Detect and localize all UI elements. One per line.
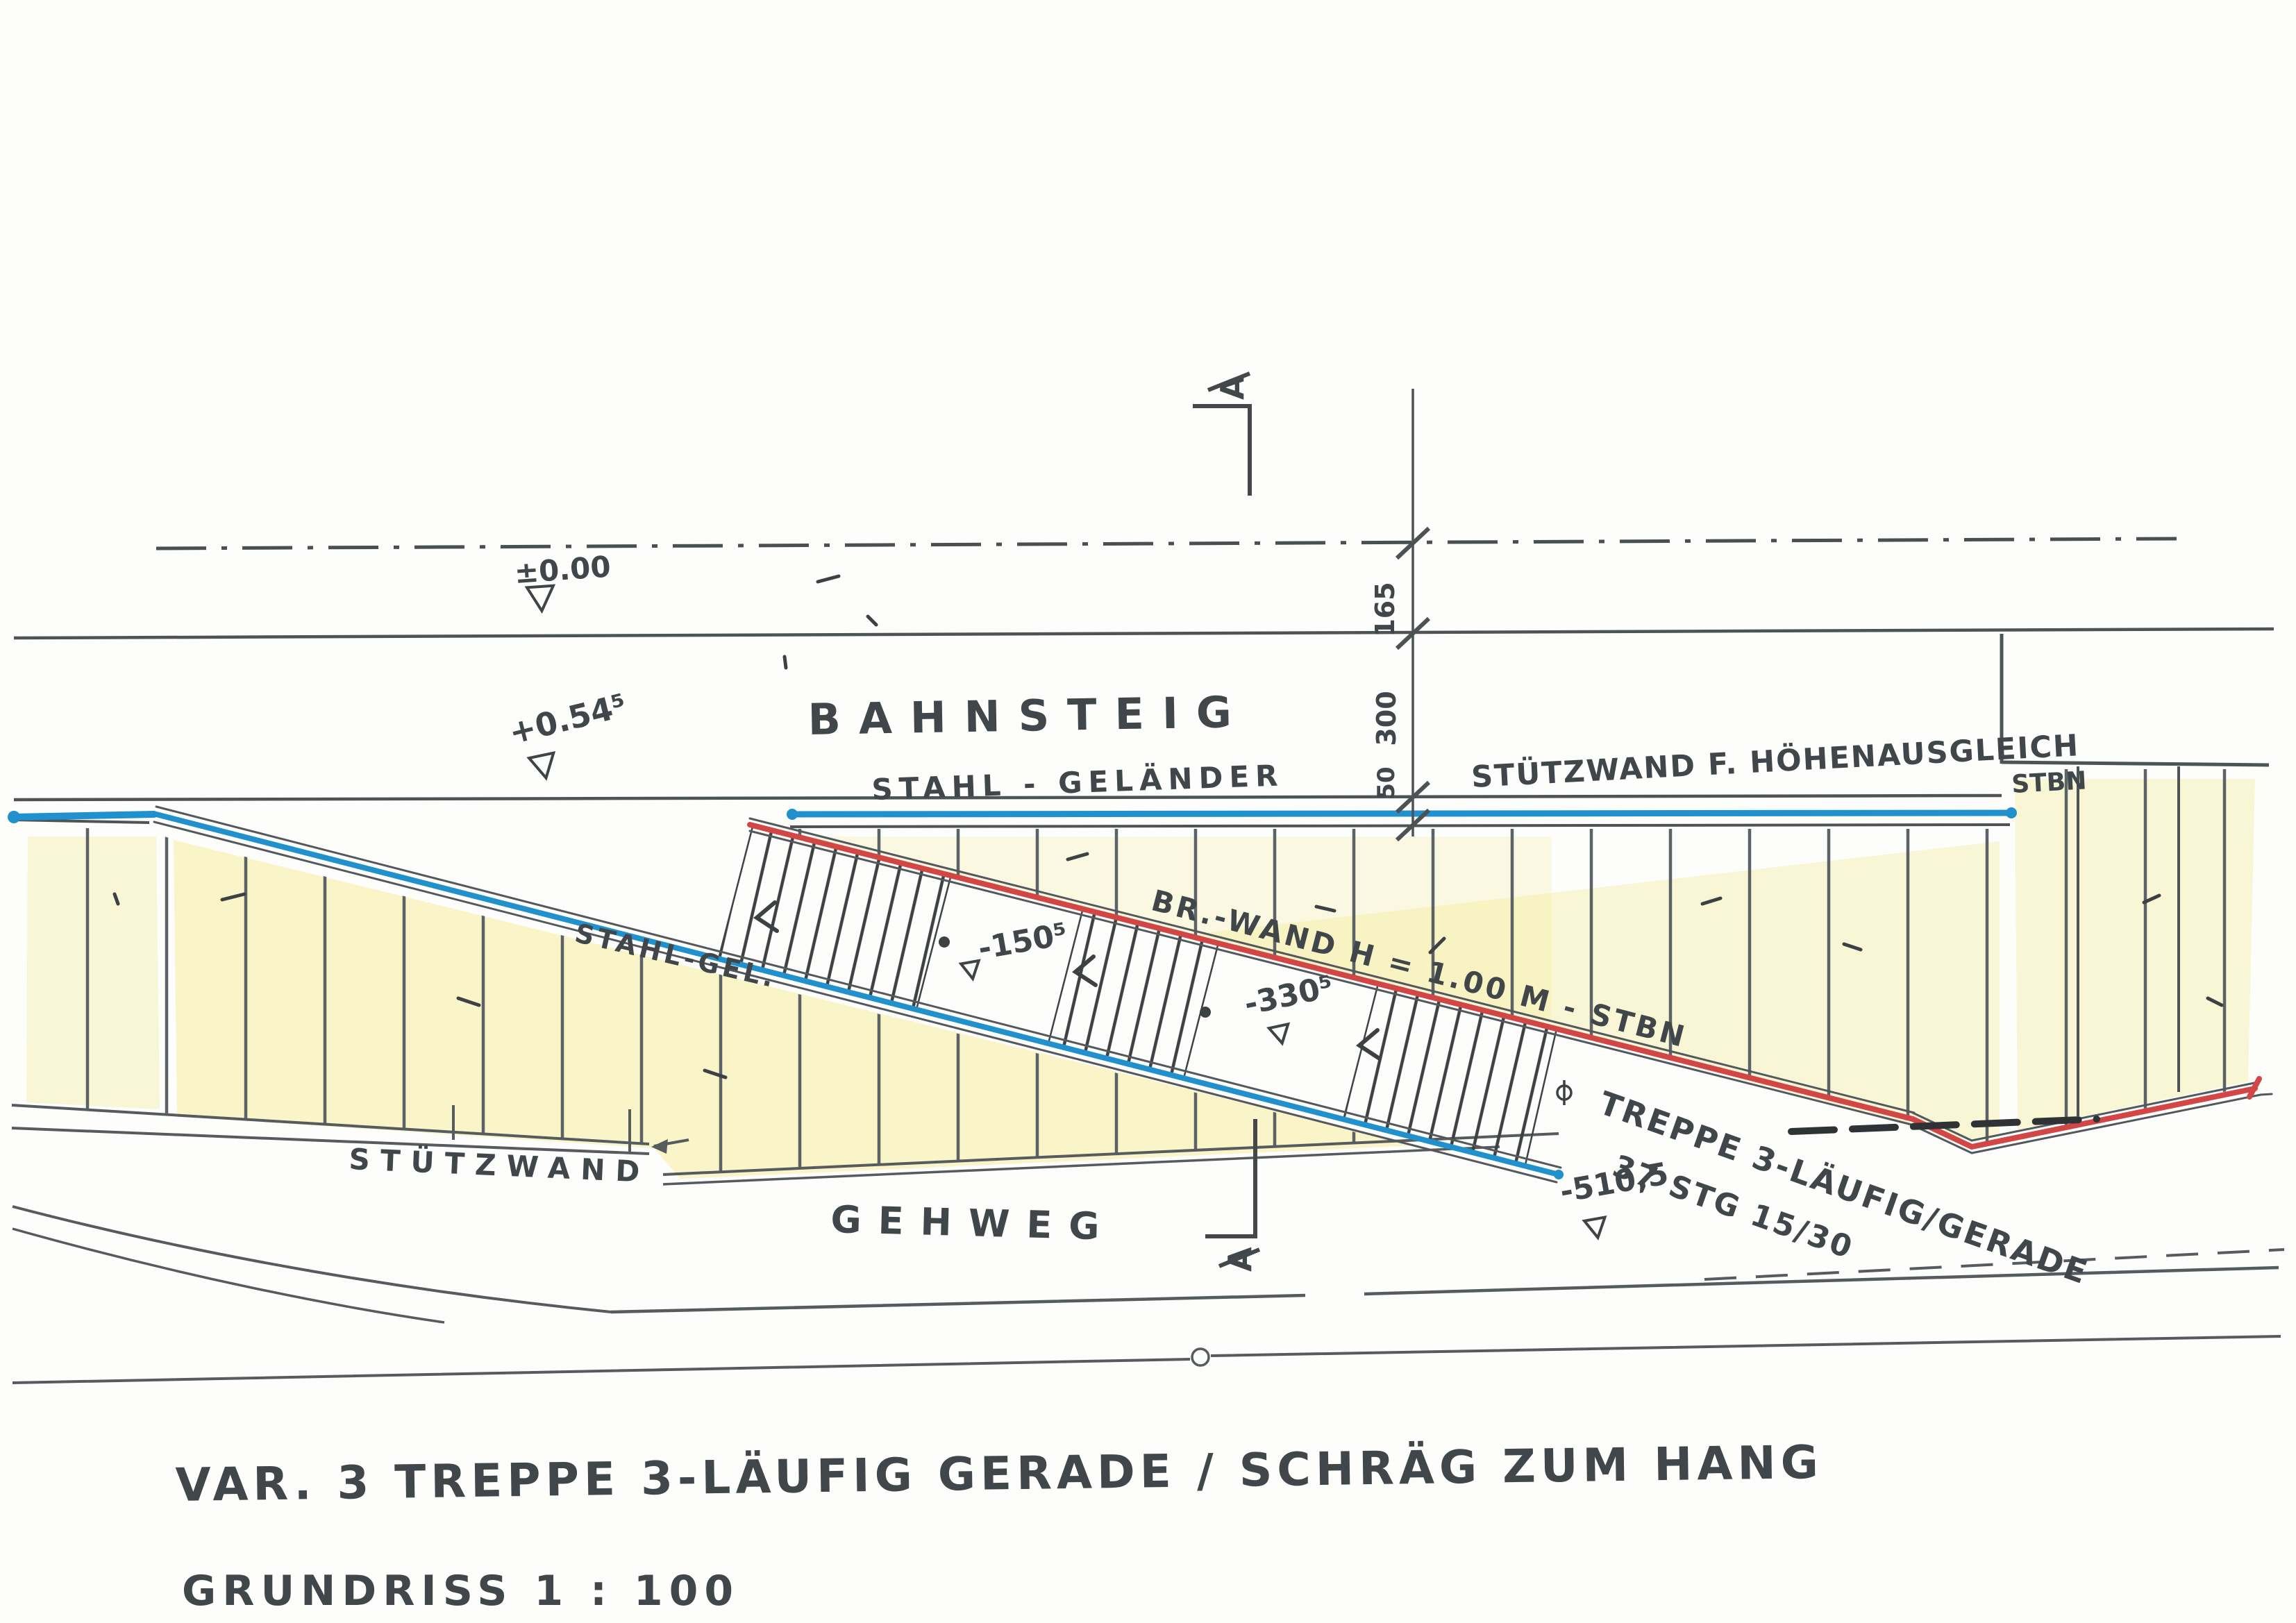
level-landing2: -330⁵ bbox=[1241, 969, 1336, 1023]
level-platform: +0.54⁵ bbox=[505, 687, 630, 752]
landing2-post-dot bbox=[1200, 1007, 1211, 1018]
level-landing1: -150⁵ bbox=[975, 916, 1070, 967]
retaining-wall-material-label: STBN bbox=[2011, 766, 2087, 799]
retaining-wall-left-label: STÜTZWAND bbox=[349, 1141, 651, 1189]
title-block: VAR. 3 TREPPE 3-LÄUFIG GERADE / SCHRÄG Z… bbox=[175, 1435, 1823, 1615]
dim-165: 165 bbox=[1370, 582, 1400, 637]
retaining-wall-top-label: STÜTZWAND F. HÖHENAUSGLEICH bbox=[1470, 728, 2080, 795]
title-line1: VAR. 3 TREPPE 3-LÄUFIG GERADE / SCHRÄG Z… bbox=[175, 1435, 1823, 1512]
title-line2: GRUNDRISS 1 : 100 bbox=[182, 1567, 739, 1615]
stair-foot-post bbox=[1557, 1080, 1571, 1105]
dim-50: 50 bbox=[1373, 766, 1400, 799]
landing1-post-dot bbox=[939, 936, 950, 948]
track-centerline bbox=[156, 539, 2177, 548]
section-marker-top: A bbox=[1193, 373, 1251, 496]
level-track: ±0.00 bbox=[513, 549, 612, 590]
section-cut-line bbox=[1397, 389, 1429, 840]
area-platform-label: BAHNSTEIG bbox=[807, 687, 1250, 745]
dim-300: 300 bbox=[1371, 691, 1402, 746]
dimension-labels: 165 300 50 bbox=[1370, 582, 1402, 799]
area-walkway-label: GEHWEG bbox=[830, 1197, 1117, 1249]
railing-top-label: STAHL - GELÄNDER bbox=[871, 757, 1285, 807]
plan-drawing-sheet: A A 165 300 50 ±0.00 +0.54⁵ -150⁵ -330⁵ … bbox=[0, 0, 2296, 1623]
